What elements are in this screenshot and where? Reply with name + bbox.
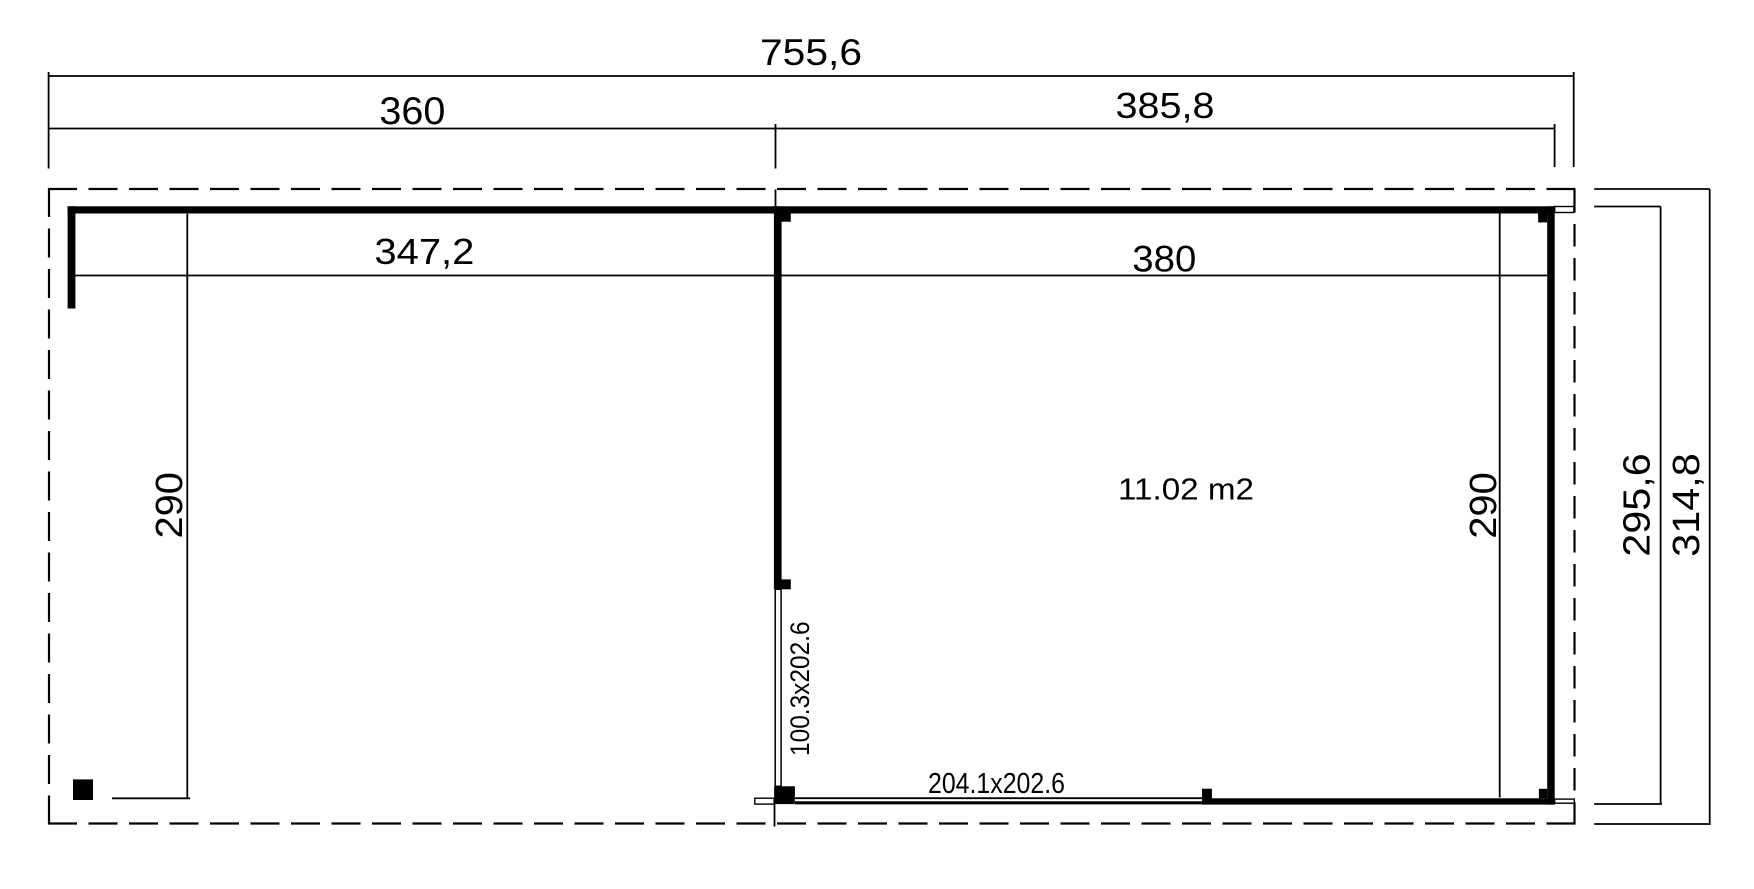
svg-text:11.02 m2: 11.02 m2: [1118, 472, 1254, 507]
svg-text:755,6: 755,6: [760, 31, 862, 73]
svg-text:314,8: 314,8: [1666, 453, 1708, 557]
svg-text:360: 360: [379, 90, 445, 133]
svg-text:290: 290: [149, 472, 191, 539]
svg-text:295,6: 295,6: [1617, 453, 1659, 557]
svg-text:204.1x202.6: 204.1x202.6: [928, 768, 1065, 800]
svg-text:385,8: 385,8: [1116, 85, 1215, 126]
svg-text:100.3x202.6: 100.3x202.6: [785, 621, 815, 756]
svg-text:347,2: 347,2: [374, 231, 474, 272]
svg-text:290: 290: [1463, 472, 1505, 539]
svg-text:380: 380: [1132, 237, 1196, 279]
